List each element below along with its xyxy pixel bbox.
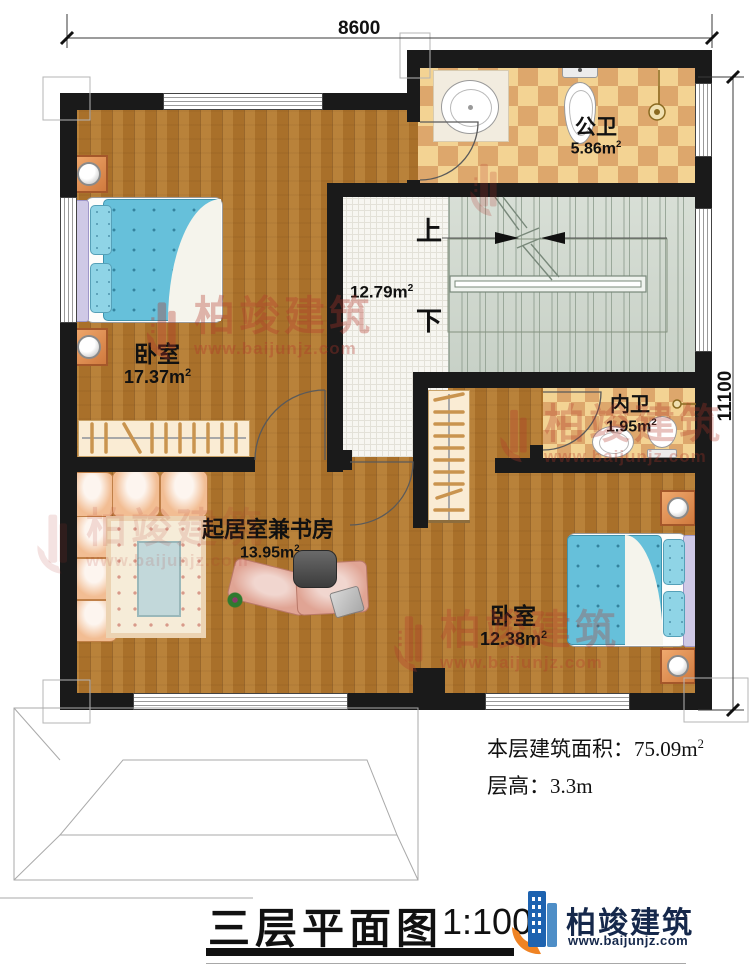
- lower-roof-outline: [0, 708, 418, 898]
- room-area-inner-bath: 1.95m2: [606, 418, 657, 436]
- room-label-bedroom2: 卧室: [490, 604, 536, 629]
- shower-head: [649, 70, 665, 120]
- room-label-public-bath: 公卫: [556, 116, 636, 139]
- room-label-living-study: 起居室兼书房: [202, 518, 334, 542]
- dimension-right: 11100: [715, 366, 737, 426]
- title-underline: [206, 948, 514, 956]
- title-underline-thin: [206, 963, 686, 964]
- watermark-logo-icon: [466, 158, 506, 225]
- room-area-living-study: 13.95m2: [240, 544, 300, 562]
- towel-hook: [673, 400, 696, 408]
- closet-hangers: [435, 394, 463, 520]
- room-area-bedroom1: 17.37m2: [124, 368, 191, 388]
- room-area-hallway: 12.79m2: [350, 283, 413, 302]
- brand-url: www.baijunjz.com: [568, 933, 688, 948]
- wardrobe-hangers: [82, 424, 246, 452]
- room-label-inner-bath: 内卫: [610, 394, 650, 416]
- room-area-public-bath: 5.86m2: [552, 140, 640, 158]
- brand-logo-icon: [508, 886, 564, 963]
- drawing-title: 三层平面图: [208, 895, 443, 956]
- room-label-bedroom1: 卧室: [134, 342, 180, 367]
- dimension-top: 8600: [338, 18, 380, 40]
- room-area-bedroom2: 12.38m2: [480, 630, 547, 650]
- stairs-down-label: 下: [416, 308, 442, 334]
- floor-plan-canvas: 8600 11100 公卫 5.86m2 卧室 17.37m2 12.79m2 …: [0, 0, 750, 973]
- stairs-up-label: 上: [416, 218, 442, 244]
- floor-area-note: 本层建筑面积：75.09m2: [487, 733, 704, 763]
- floor-height-note: 层高：3.3m: [487, 770, 593, 800]
